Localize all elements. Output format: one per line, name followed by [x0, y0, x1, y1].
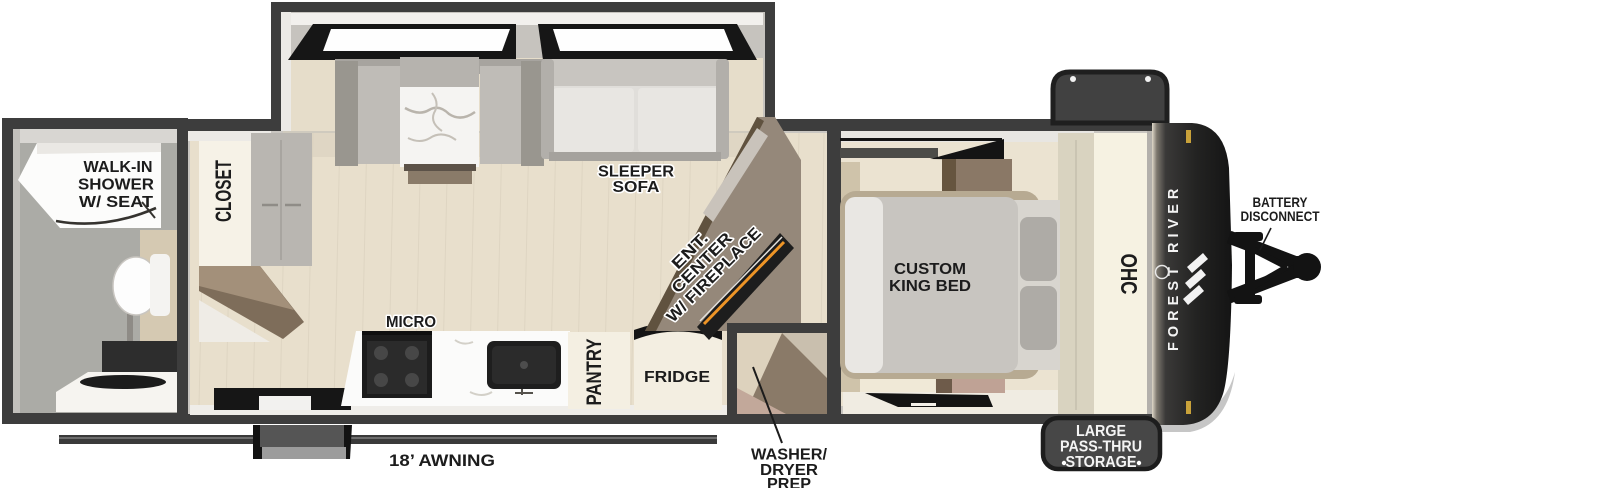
svg-text:PASS-THRU: PASS-THRU: [1060, 439, 1142, 456]
svg-text:WASHER/: WASHER/: [751, 447, 828, 464]
svg-text:PREP: PREP: [767, 476, 811, 488]
svg-text:CLOSET: CLOSET: [211, 160, 236, 222]
svg-text:CUSTOM: CUSTOM: [894, 261, 966, 278]
svg-text:KING BED: KING BED: [889, 278, 971, 295]
svg-text:WALK-IN: WALK-IN: [84, 159, 153, 176]
svg-text:SLEEPER: SLEEPER: [598, 164, 674, 181]
svg-text:FRIDGE: FRIDGE: [644, 369, 710, 386]
svg-text:DISCONNECT: DISCONNECT: [1241, 208, 1320, 224]
svg-text:18’ AWNING: 18’ AWNING: [389, 451, 495, 470]
svg-text:PANTRY: PANTRY: [583, 339, 606, 406]
svg-text:LARGE: LARGE: [1076, 423, 1126, 440]
svg-text:MICRO: MICRO: [386, 314, 436, 331]
svg-text:OHC: OHC: [1116, 254, 1142, 295]
svg-text:W/ SEAT: W/ SEAT: [79, 194, 154, 211]
svg-text:SHOWER: SHOWER: [78, 177, 154, 194]
svg-text:STORAGE: STORAGE: [1066, 454, 1137, 471]
svg-text:SOFA: SOFA: [613, 179, 660, 196]
